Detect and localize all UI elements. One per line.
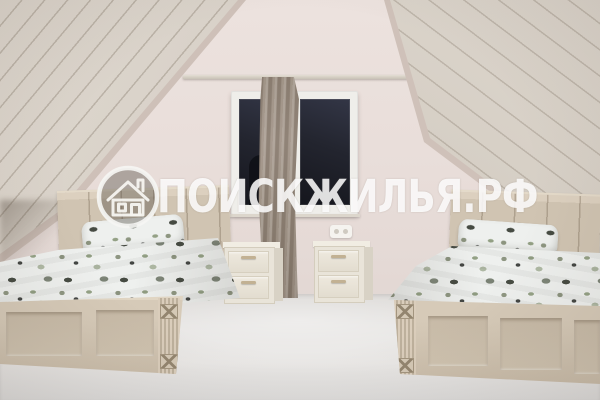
curtain-rod	[183, 75, 421, 79]
footboard-post	[158, 298, 180, 376]
footboard-panel	[6, 312, 82, 356]
nightstand-drawer	[318, 250, 359, 272]
footboard-panel	[574, 320, 600, 374]
drawer-handle	[241, 281, 256, 284]
bed-right-footboard	[390, 292, 600, 384]
nightstand-right	[313, 241, 375, 303]
nightstand-side	[364, 247, 373, 300]
nightstand-side	[274, 248, 283, 301]
carved-x-ornament	[160, 304, 178, 319]
nightstand-drawer	[228, 251, 269, 273]
nightstand-drawer	[318, 275, 359, 298]
bed-left-footboard	[0, 294, 184, 378]
window-pane-right	[300, 99, 350, 205]
carved-x-ornament	[160, 354, 178, 369]
footboard-panel	[500, 318, 562, 370]
drawer-handle	[331, 280, 346, 283]
carved-x-ornament	[396, 304, 414, 319]
nightstand-front	[314, 246, 365, 303]
drawer-handle	[241, 256, 256, 259]
footboard-panel	[428, 316, 488, 366]
drawer-handle	[331, 255, 346, 258]
power-outlet	[330, 225, 352, 238]
footboard-panel	[96, 310, 154, 356]
attic-bedroom-photo: ПОИСКЖИЛЬЯ.РФ	[0, 0, 600, 400]
